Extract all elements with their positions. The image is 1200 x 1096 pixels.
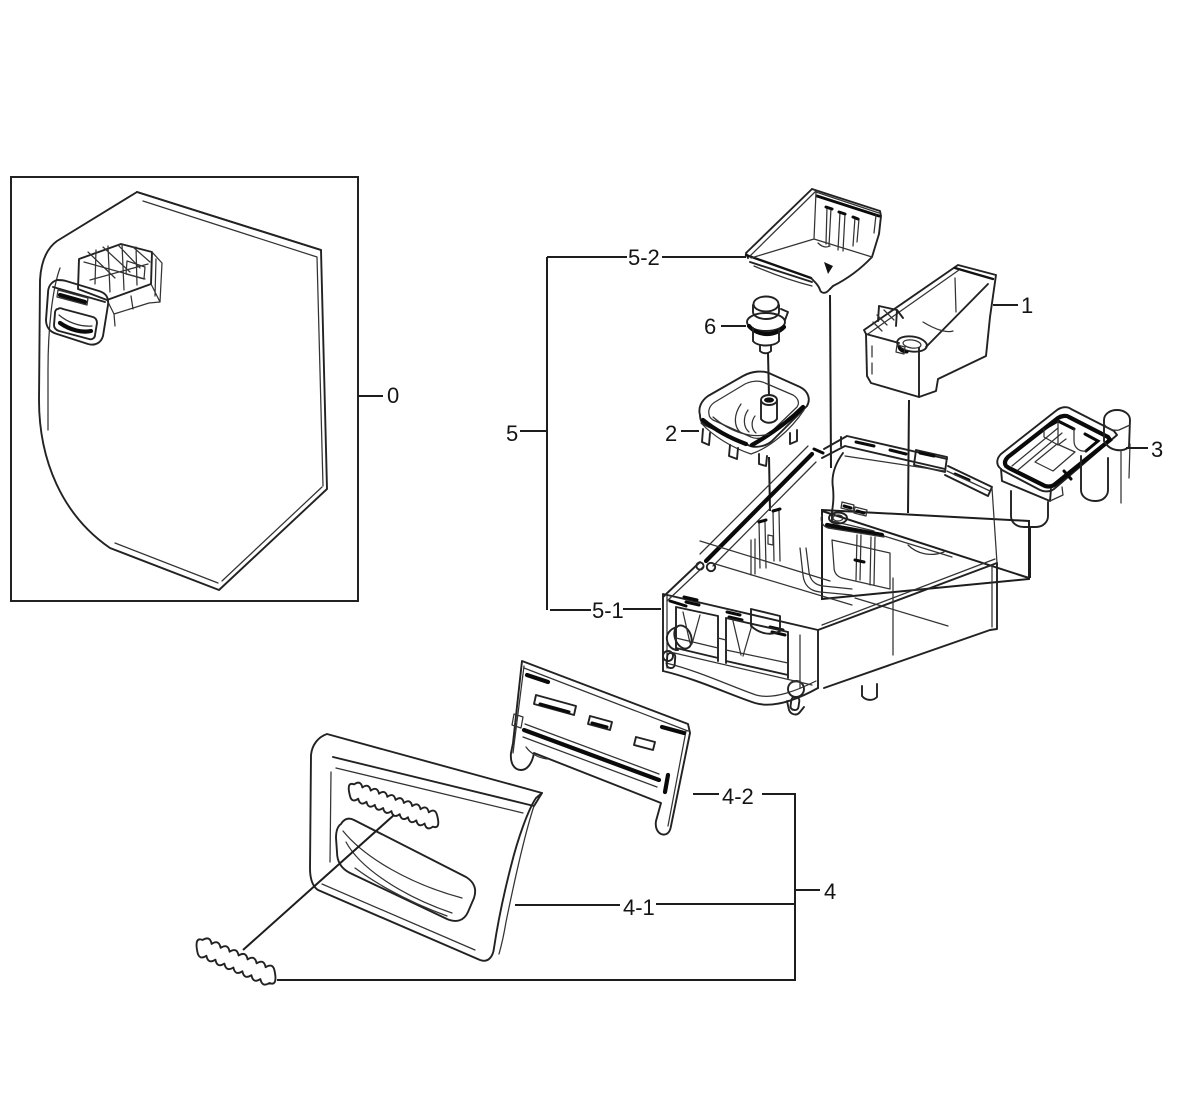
svg-text:0: 0 [387,383,399,408]
svg-text:5-2: 5-2 [628,245,660,270]
svg-text:5: 5 [506,421,518,446]
svg-text:3: 3 [1151,437,1163,462]
svg-text:5-1: 5-1 [592,598,624,623]
svg-text:4: 4 [824,879,836,904]
svg-text:4-2: 4-2 [722,784,754,809]
svg-text:1: 1 [1021,293,1033,318]
svg-text:4-1: 4-1 [623,895,655,920]
svg-text:6: 6 [704,314,716,339]
svg-text:2: 2 [665,421,677,446]
